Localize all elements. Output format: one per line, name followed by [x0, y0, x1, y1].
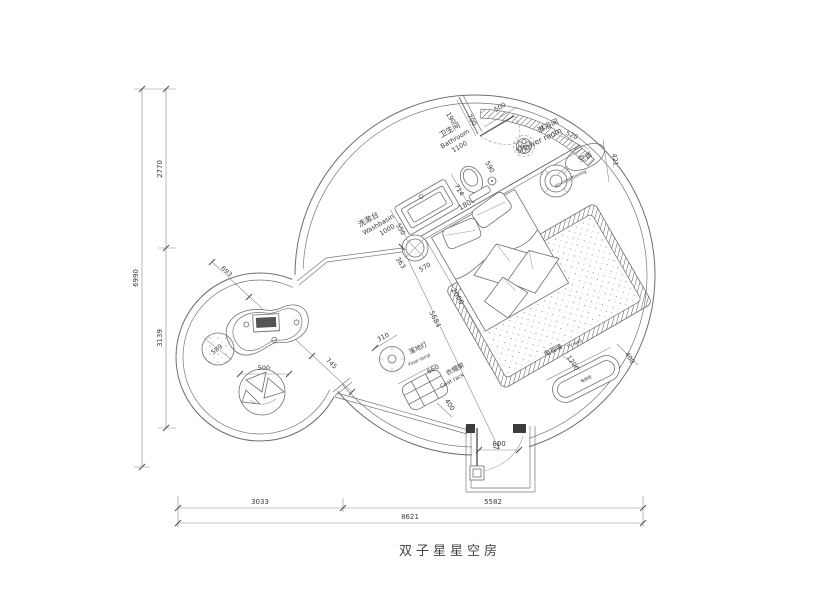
drawing-title: 双子星星空房 — [399, 543, 501, 559]
dim-tv-400: 400 — [623, 351, 636, 366]
dim-421: 421 — [610, 153, 620, 166]
beanbag: 500 — [237, 364, 292, 415]
dim-lamp-310: 310 — [376, 331, 391, 344]
dim-8621: 8621 — [401, 513, 419, 521]
dim-3033: 3033 — [251, 498, 269, 506]
floor-lamp — [380, 347, 405, 372]
dim-590: 590 — [483, 160, 496, 175]
dim-5582: 5582 — [484, 498, 502, 506]
left-dimensions: 6990 2770 3139 — [132, 86, 176, 470]
dim-3139: 3139 — [156, 329, 164, 347]
bedside-stool — [402, 235, 428, 261]
dim-6990: 6990 — [132, 269, 140, 287]
bottom-dimensions: 3033 5582 8621 — [175, 496, 646, 527]
door-post-right — [513, 424, 526, 433]
dim-stool-363: 363 — [394, 255, 408, 270]
dim-421-group: 421 — [603, 139, 620, 182]
dim-beanbag-500: 500 — [258, 364, 270, 372]
pouf: 589 — [202, 333, 234, 365]
floor-plan-page: 800 2000 — [0, 0, 837, 592]
dim-2770: 2770 — [156, 160, 164, 178]
door-post-left — [466, 424, 475, 433]
laptop — [253, 314, 280, 332]
floor-plan-canvas: 800 2000 — [0, 0, 837, 592]
dim-700: 700 — [465, 113, 478, 128]
dim-590-group: 590 — [483, 160, 496, 185]
svg-text:5684: 5684 — [427, 309, 442, 329]
dim-693: 693 — [219, 264, 234, 278]
label-floorlamp-cn: 落地灯 — [407, 339, 429, 356]
dim-stool-570: 570 — [418, 261, 433, 274]
